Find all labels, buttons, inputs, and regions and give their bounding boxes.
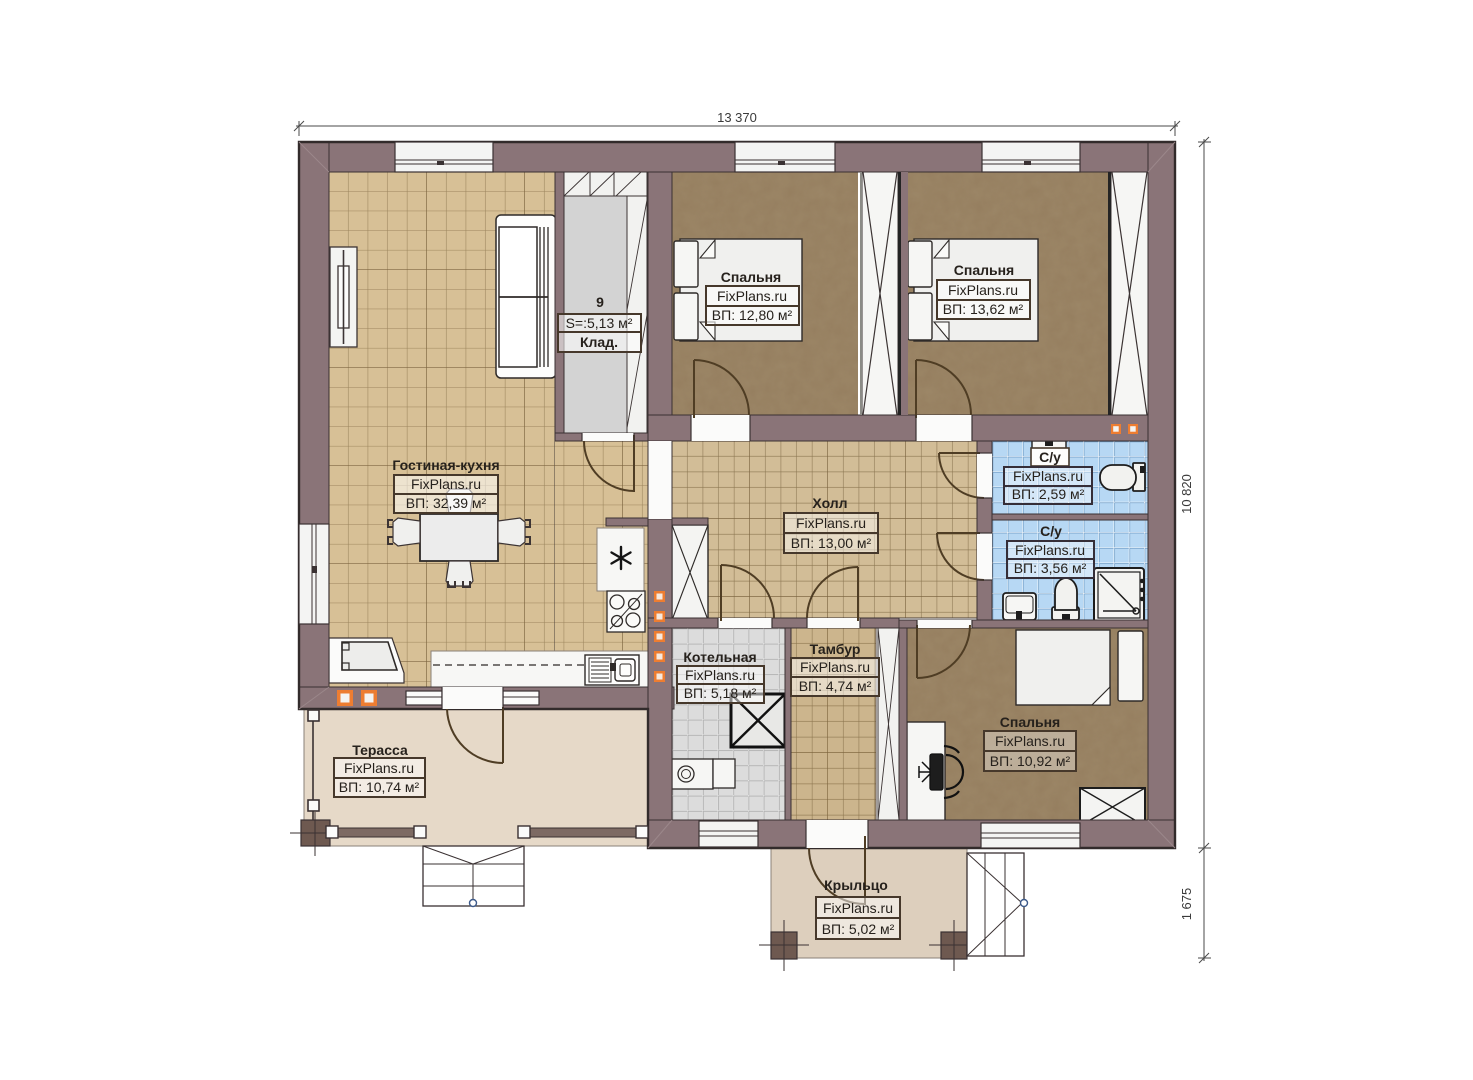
svg-text:ВП: 4,74 м²: ВП: 4,74 м² [799,678,872,694]
svg-text:Котельная: Котельная [683,649,756,665]
svg-text:Спальня: Спальня [1000,714,1060,730]
svg-text:13 370: 13 370 [717,110,757,125]
svg-text:Тамбур: Тамбур [810,641,861,657]
svg-text:FixPlans.ru: FixPlans.ru [1015,542,1085,558]
svg-text:1 675: 1 675 [1179,888,1194,921]
svg-text:Холл: Холл [812,495,847,511]
svg-text:FixPlans.ru: FixPlans.ru [1013,468,1083,484]
svg-text:FixPlans.ru: FixPlans.ru [411,476,481,492]
svg-text:FixPlans.ru: FixPlans.ru [948,282,1018,298]
svg-text:FixPlans.ru: FixPlans.ru [800,659,870,675]
svg-text:Спальня: Спальня [721,269,781,285]
svg-text:ВП: 13,00 м²: ВП: 13,00 м² [791,535,872,551]
svg-text:С/у: С/у [1040,523,1062,539]
svg-text:ВП: 5,18 м²: ВП: 5,18 м² [684,685,757,701]
svg-text:FixPlans.ru: FixPlans.ru [344,760,414,776]
svg-text:ВП: 12,80 м²: ВП: 12,80 м² [712,307,793,323]
svg-text:ВП: 2,59 м²: ВП: 2,59 м² [1012,486,1085,502]
svg-text:ВП: 5,02 м²: ВП: 5,02 м² [822,921,895,937]
svg-text:Гостиная-кухня: Гостиная-кухня [392,457,499,473]
svg-text:ВП: 10,92 м²: ВП: 10,92 м² [990,753,1071,769]
svg-text:S=:5,13 м²: S=:5,13 м² [566,315,633,331]
svg-text:9: 9 [596,294,604,310]
svg-text:Крыльцо: Крыльцо [824,877,888,893]
svg-text:10 820: 10 820 [1179,474,1194,514]
svg-text:FixPlans.ru: FixPlans.ru [717,288,787,304]
svg-text:FixPlans.ru: FixPlans.ru [796,515,866,531]
svg-text:Спальня: Спальня [954,262,1014,278]
svg-text:Терасса: Терасса [352,742,408,758]
svg-text:Клад.: Клад. [580,334,618,350]
svg-text:С/у: С/у [1039,449,1061,465]
svg-text:FixPlans.ru: FixPlans.ru [823,900,893,916]
svg-text:ВП: 13,62 м²: ВП: 13,62 м² [943,301,1024,317]
svg-text:ВП: 32,39 м²: ВП: 32,39 м² [406,495,487,511]
svg-text:ВП: 3,56 м²: ВП: 3,56 м² [1014,560,1087,576]
svg-text:ВП: 10,74 м²: ВП: 10,74 м² [339,779,420,795]
svg-text:FixPlans.ru: FixPlans.ru [995,733,1065,749]
svg-text:FixPlans.ru: FixPlans.ru [685,667,755,683]
